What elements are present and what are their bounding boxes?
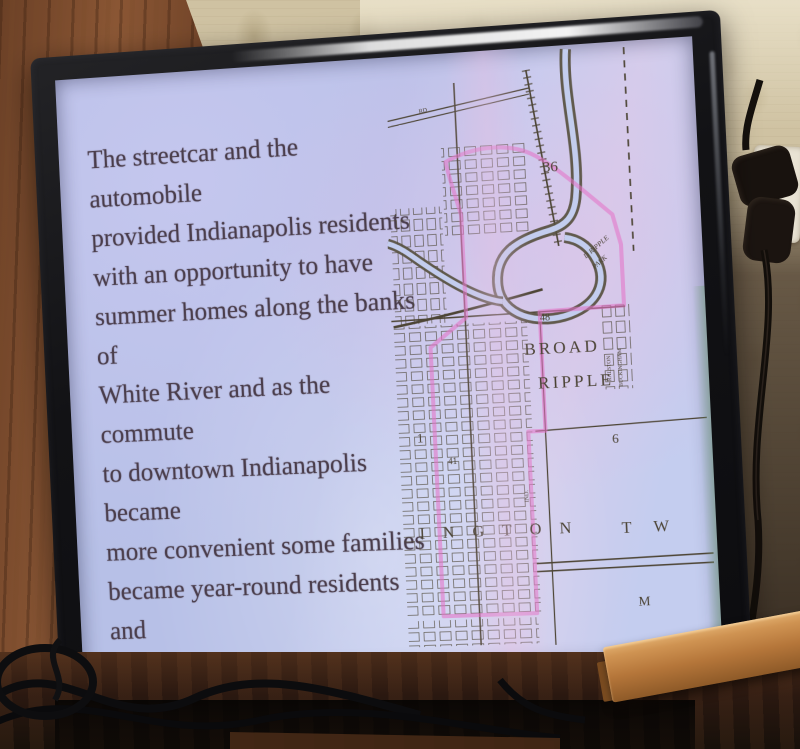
ripple-label: RIPPLE xyxy=(538,370,615,393)
ralston-street-label: RALSTON xyxy=(606,355,613,381)
section-6-label: 6 xyxy=(612,431,620,446)
elevation-48-label: 48 xyxy=(540,312,551,324)
section-1-label: 1 xyxy=(417,431,424,446)
samsung-tv: The streetcar and the automobile provide… xyxy=(30,10,754,725)
section-line-dashed xyxy=(624,47,634,251)
road-label: RD xyxy=(418,107,428,115)
slide-text-line: White River and as the commute xyxy=(98,360,434,455)
slide-text-line: to downtown Indianapolis became xyxy=(102,440,438,533)
boulevard-line-2 xyxy=(537,562,714,572)
broad-ripple-plat-map: RD xyxy=(379,39,719,660)
road-east xyxy=(535,417,707,431)
tv-screen: The streetcar and the automobile provide… xyxy=(55,36,723,679)
m-label: M xyxy=(638,594,651,609)
marker-41-label: 41 xyxy=(448,456,457,467)
section-36-label: 36 xyxy=(542,159,558,176)
boulevard-line-1 xyxy=(537,553,714,564)
township-tw-label: T W xyxy=(621,517,679,537)
room-scene: The streetcar and the automobile provide… xyxy=(0,0,800,749)
